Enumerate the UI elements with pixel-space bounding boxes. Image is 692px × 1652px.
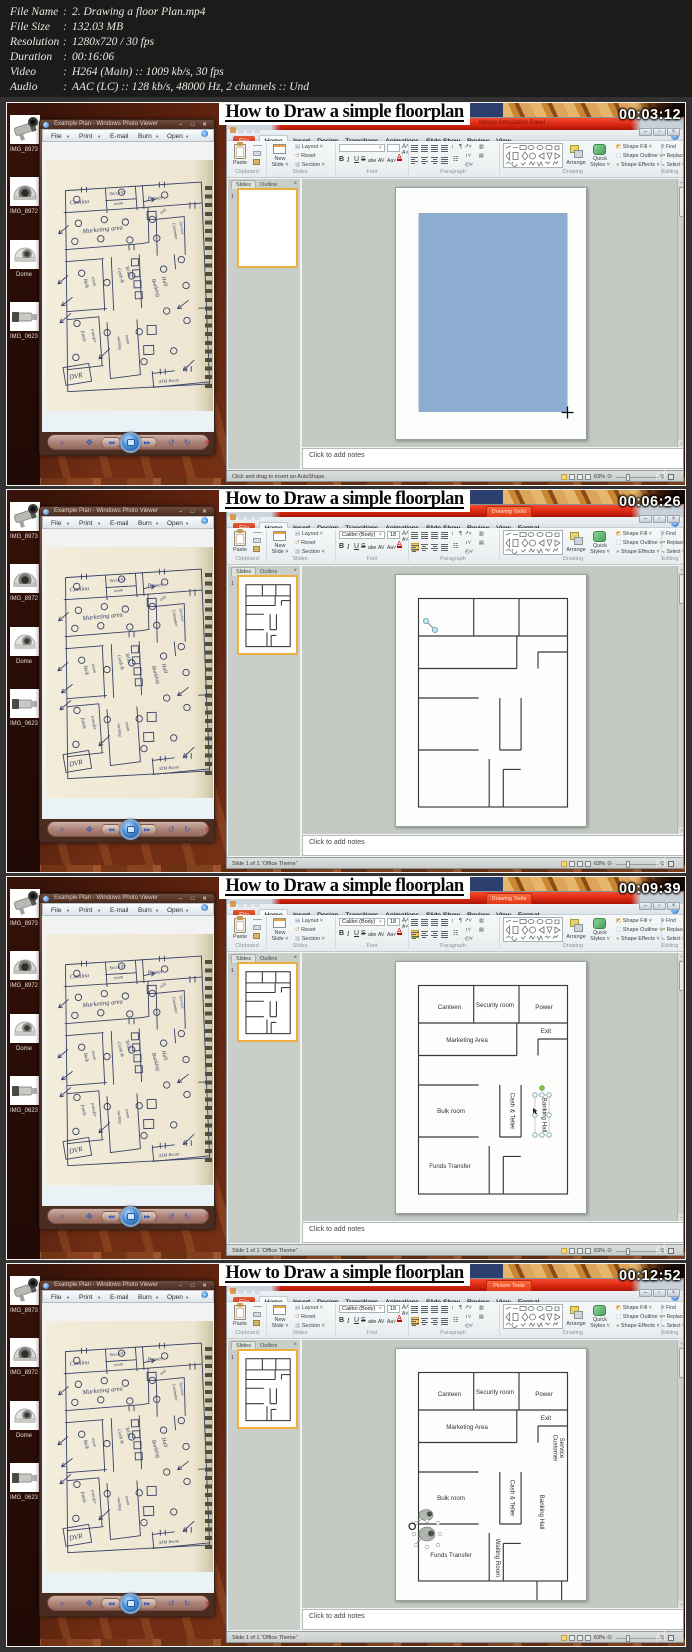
svg-text:Customer: Customer (552, 1435, 559, 1462)
svg-text:Cash & Teller: Cash & Teller (509, 1093, 516, 1130)
svg-text:Power: Power (535, 1004, 553, 1011)
svg-text:Security room: Security room (476, 1389, 514, 1396)
svg-text:Bulk room: Bulk room (437, 1495, 465, 1502)
svg-text:Exit: Exit (541, 1415, 552, 1422)
svg-text:Marketing Area: Marketing Area (446, 1037, 488, 1044)
svg-text:Service: Service (558, 1438, 565, 1459)
svg-text:Canteen: Canteen (438, 1391, 462, 1398)
svg-text:Bulk room: Bulk room (437, 1108, 465, 1115)
svg-text:Security room: Security room (476, 1002, 514, 1009)
svg-text:Power: Power (535, 1391, 553, 1398)
svg-text:Cash & Teller: Cash & Teller (509, 1480, 516, 1517)
svg-text:Funds Transfer: Funds Transfer (429, 1163, 471, 1170)
svg-text:Marketing Area: Marketing Area (446, 1424, 488, 1431)
svg-text:Waiting Room: Waiting Room (494, 1539, 501, 1578)
svg-text:Exit: Exit (541, 1028, 552, 1035)
svg-text:Banking Hall: Banking Hall (538, 1495, 545, 1530)
svg-text:Funds Transfer: Funds Transfer (430, 1552, 472, 1559)
svg-text:Canteen: Canteen (438, 1004, 462, 1011)
